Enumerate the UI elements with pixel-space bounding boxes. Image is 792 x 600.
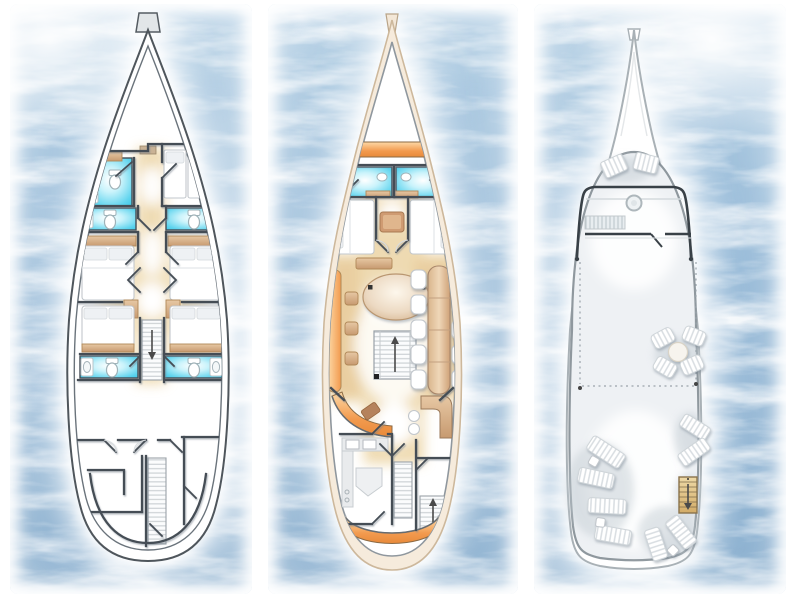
staircase (374, 331, 416, 379)
staircase (394, 462, 412, 518)
sideboard (356, 258, 392, 269)
cabin-double (80, 236, 136, 300)
cabin-double (82, 306, 134, 352)
round-table (669, 343, 688, 362)
cabin-table (380, 212, 404, 232)
lounge-stools (345, 292, 358, 365)
cabin-deck-plan (0, 0, 264, 600)
toilet-icon (188, 210, 200, 229)
sink-icon (210, 358, 222, 376)
sink-icon (401, 173, 411, 181)
sink-icon (363, 440, 376, 449)
toilet-icon (104, 210, 116, 229)
sun-deck-plan (528, 0, 792, 600)
deck-plans-illustration (0, 0, 792, 600)
staircase (142, 320, 162, 380)
console-hatch (585, 216, 625, 229)
bathroom (164, 356, 222, 378)
cabin-double (170, 306, 222, 352)
sink-icon (346, 440, 359, 449)
main-deck-plan (264, 0, 528, 600)
sink-icon (377, 173, 387, 181)
toilet-icon (106, 358, 118, 377)
toilet-icon (188, 358, 200, 377)
stool (409, 424, 420, 435)
wood-staircase (679, 477, 697, 513)
dining-table (428, 266, 450, 394)
bathroom (80, 356, 138, 378)
stool (409, 411, 420, 422)
side-table (595, 517, 605, 527)
sink-icon (81, 358, 93, 376)
